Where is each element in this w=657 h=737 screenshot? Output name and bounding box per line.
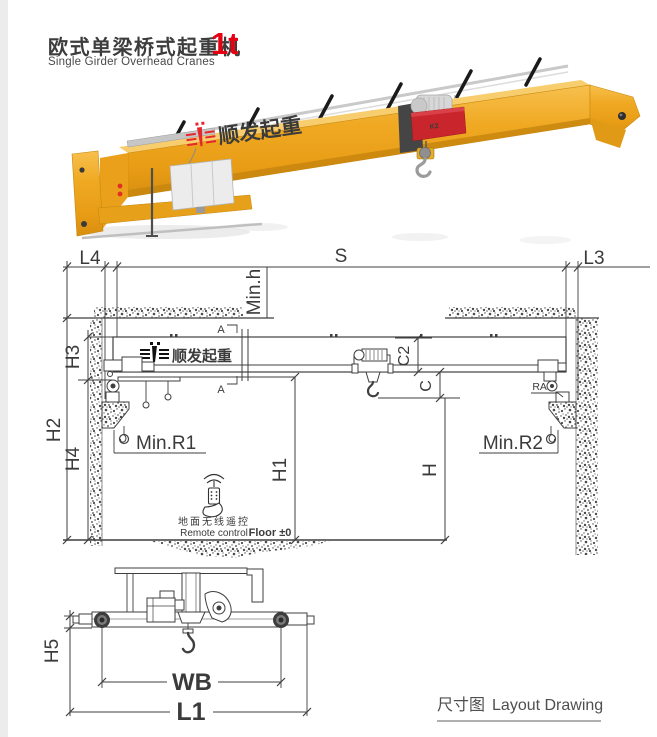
hook-endview [183,633,194,652]
layout-drawing: L4 S L3 Min.h RAIL [44,246,650,558]
dim-h2: H2 [44,418,65,442]
remote-control-icon [203,475,224,517]
brand-logo-text-drawing: 顺发起重 [172,347,232,365]
dim-s: S [335,246,348,267]
corbel-right [549,402,576,428]
buffer-right [307,616,314,624]
remote-label-cn: 地面无线遥控 [178,515,250,528]
girder-web-endview [182,573,200,612]
corbel-left [102,402,129,428]
dim-c: C [418,380,435,392]
dim-h4: H4 [63,446,84,471]
min-r2-group: Min.R2 [479,426,558,454]
dim-l3: L3 [583,248,604,269]
dim-wb: WB [172,669,212,696]
dim-h3: H3 [63,345,84,369]
hoist-drawing [352,349,393,396]
hoist-model-label: K2 [429,123,439,131]
wheel-right [273,612,289,628]
crane-drawing-canvas: K2 顺发起重 [0,0,657,737]
drawing-caption: 尺寸图Layout Drawing [437,691,601,722]
wheel-left [94,612,110,628]
end-view-drawing: H5 WB L1 [42,568,314,726]
remote-label-en: Remote control [180,528,248,539]
dim-l4: L4 [79,248,101,269]
dim-h1: H1 [270,458,291,482]
dim-min-h: Min.h [244,269,265,315]
wall-hatch-right [576,318,598,555]
dim-l1: L1 [176,698,205,726]
dim-c2: C2 [396,346,413,367]
ceiling-hatch-left [94,307,243,318]
dim-h5: H5 [42,639,63,663]
girder-end-bracket-right [590,85,640,148]
floor-hatch [150,541,330,558]
ceiling-hatch-right [449,307,576,318]
section-a-bottom: A [217,384,225,396]
dim-h: H [420,463,441,477]
crane-3d-render: K2 顺发起重 [72,59,640,244]
drawing-caption-cn: 尺寸图 [437,697,485,714]
dim-min-r2: Min.R2 [483,433,543,454]
rail-left [106,392,119,402]
dim-min-r1: Min.R1 [136,433,196,454]
section-a-top: A [217,324,225,336]
bracket-endview [247,569,263,602]
hook-3d [417,159,430,176]
wall-hatch-left [90,318,102,546]
drawing-caption-en: Layout Drawing [492,697,603,714]
catalog-page: 欧式单梁桥式起重机 Single Girder Overhead Cranes … [0,0,657,737]
girder-flange-endview [115,568,247,574]
hook-drawing [368,382,378,396]
min-r1-group: Min.R1 [114,426,206,454]
floor-label: Floor ±0 [249,527,292,539]
buffer-left [73,616,79,623]
